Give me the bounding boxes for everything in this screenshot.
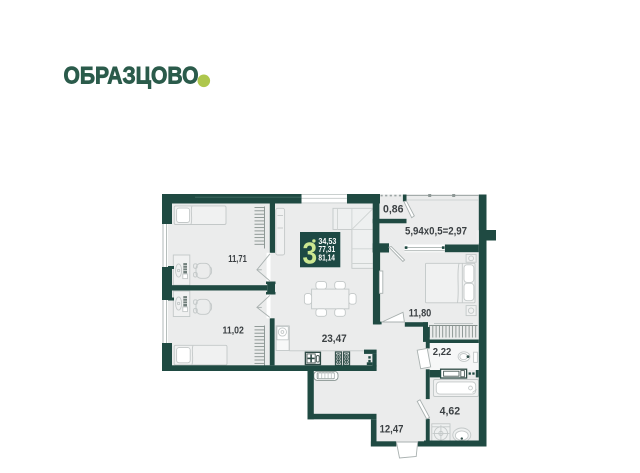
svg-text:11,02: 11,02 [223, 325, 244, 337]
svg-text:11,80: 11,80 [409, 308, 432, 320]
svg-text:0,86: 0,86 [383, 204, 404, 216]
svg-text:4,62: 4,62 [440, 406, 461, 418]
svg-text:23,47: 23,47 [322, 333, 347, 345]
svg-text:ОБРАЗЦОВО: ОБРАЗЦОВО [64, 63, 199, 90]
svg-text:2,22: 2,22 [433, 346, 452, 358]
svg-text:11,71: 11,71 [228, 253, 247, 265]
svg-text:5,94х0,5=2,97: 5,94х0,5=2,97 [405, 226, 467, 238]
svg-text:81,14: 81,14 [318, 254, 335, 263]
svg-text:12,47: 12,47 [380, 424, 404, 436]
